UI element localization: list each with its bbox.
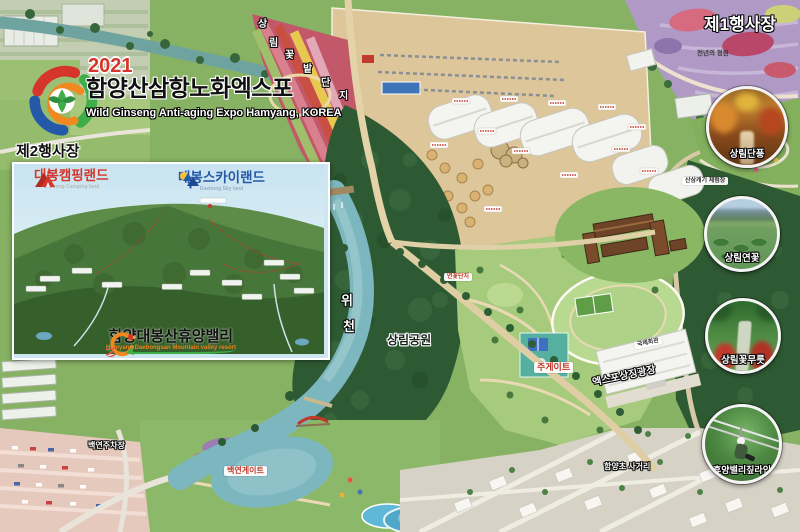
main-gate-label: 주게이트 — [534, 362, 573, 373]
logo-title: 함양산삼항노화엑스포 — [86, 77, 293, 100]
sky-subtitle: Daebong Sky land — [200, 186, 243, 192]
flower-field-char: 꽃 — [285, 51, 294, 61]
wicheon-river-label-2: 천 — [343, 320, 355, 333]
flower-field-char: 밭 — [303, 65, 312, 75]
tent-icon — [34, 169, 58, 189]
pine-trees-icon — [178, 171, 200, 189]
photo-circle-label: 상림단풍 — [709, 146, 785, 160]
photo-circle-label: 휴양밸리짚라인 — [705, 463, 779, 476]
millennium-garden-label: 천년의 정원 — [697, 51, 729, 58]
logo-year: 2021 — [88, 56, 133, 76]
photo-circle-label: 상림꽃무릇 — [708, 352, 778, 366]
flower-field-char: 상 — [258, 20, 267, 30]
lotus-area-label: 연꽃단지 — [444, 273, 472, 281]
baekyeon-gate-label: 백연게이트 — [224, 466, 267, 476]
expo-logo: 2021 함양산삼항노화엑스포 Wild Ginseng Anti-aging … — [24, 56, 336, 138]
sangnim-park-label: 상림공원 — [387, 334, 431, 346]
photo-circle-label: 상림연꽃 — [707, 250, 777, 264]
daebongsan-resort-logo: 함양대봉산휴양밸리 Hamyang Daebongsan Mountain va… — [106, 329, 236, 354]
flower-field-char: 지 — [339, 92, 348, 102]
baekyeon-parking-label: 백연주차장 — [88, 442, 125, 450]
logo-subtitle: Wild Ginseng Anti-aging Expo Hamyang, KO… — [86, 108, 342, 119]
wicheon-river-label-1: 위 — [341, 294, 353, 307]
photo-circle-zipline: 휴양밸리짚라인 — [702, 404, 782, 484]
photo-circle-autumn: 상림단풍 — [706, 86, 788, 168]
venue2-label: 제2행사장 — [16, 144, 80, 159]
photo-circle-spider-lily: 상림꽃무릇 — [705, 298, 781, 374]
expo-map: 2021 함양산삼항노화엑스포 Wild Ginseng Anti-aging … — [0, 0, 800, 532]
inset-mountain-illustration — [14, 164, 324, 354]
venue1-label: 제1행사장 — [704, 16, 776, 33]
ginseng-experience-label: 산삼캐기 체험장 — [682, 177, 728, 185]
phoenix-icon — [106, 329, 136, 357]
daebong-camping-land-logo: 대봉캠핑랜드 Daebong Camping land — [34, 169, 109, 190]
venue2-inset-map: 대봉캠핑랜드 Daebong Camping land 대봉스카이랜드 Daeb… — [12, 162, 330, 360]
flower-field-char: 림 — [269, 39, 278, 49]
photo-circle-lotus: 상림연꽃 — [704, 196, 780, 272]
flower-field-char: 단 — [321, 79, 330, 89]
daebong-sky-land-logo: 대봉스카이랜드 Daebong Sky land — [178, 171, 265, 192]
hamyang-intersection-label: 함양초 사거리 — [604, 463, 650, 471]
